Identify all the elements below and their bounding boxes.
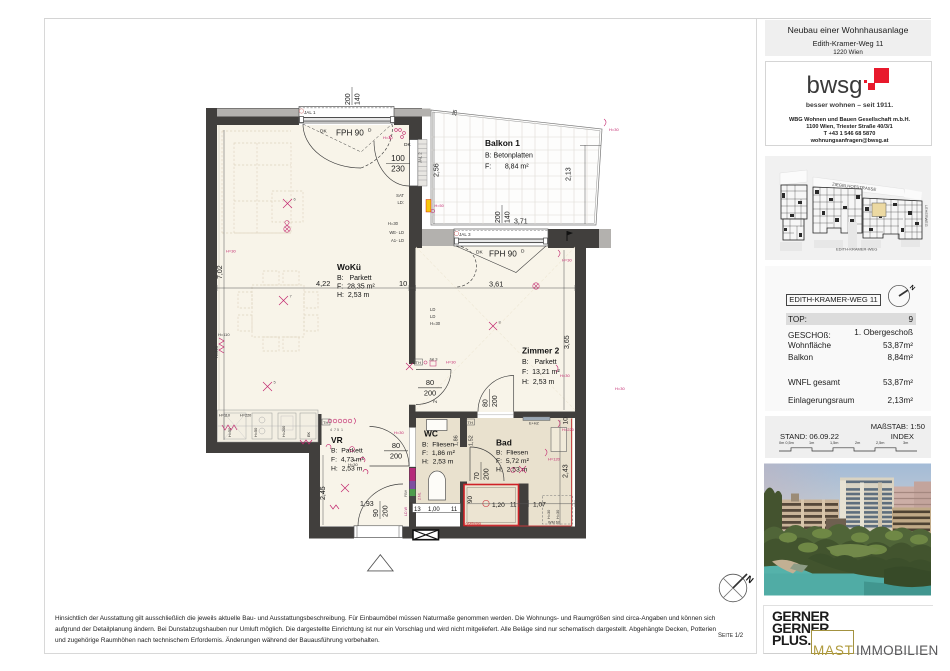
svg-text:200: 200: [383, 505, 390, 517]
svg-text:Zimmer 2: Zimmer 2: [522, 346, 560, 356]
svg-text:F: 13,21 m²: F: 13,21 m²: [522, 369, 560, 376]
svg-text:WM 60: WM 60: [548, 521, 560, 525]
svg-text:13: 13: [414, 507, 421, 513]
svg-text:DK: DK: [404, 142, 411, 148]
svg-text:0m 0,5m: 0m 0,5m: [779, 441, 794, 445]
svg-text:SAT: SAT: [396, 193, 404, 198]
svg-text:LD:: LD:: [397, 200, 404, 205]
svg-text:2,5m: 2,5m: [876, 441, 884, 445]
svg-text:FBH: FBH: [404, 489, 408, 497]
svg-text:200: 200: [492, 395, 499, 407]
svg-text:230: 230: [391, 165, 405, 174]
svg-text:H=30: H=30: [562, 258, 572, 263]
svg-text:80: 80: [426, 378, 434, 387]
svg-text:10: 10: [399, 279, 407, 288]
svg-text:10: 10: [563, 417, 570, 425]
svg-text:H=30: H=30: [226, 249, 236, 254]
svg-text:H=220: H=220: [214, 345, 219, 358]
svg-text:1m: 1m: [809, 441, 814, 445]
svg-text:LD: LD: [430, 307, 435, 312]
svg-text:H=30: H=30: [388, 221, 399, 226]
svg-text:DK: DK: [476, 250, 483, 256]
svg-text:H=30: H=30: [556, 510, 560, 519]
svg-text:DK: DK: [320, 129, 327, 135]
svg-text:1,86: 1,86: [454, 435, 460, 446]
svg-text:B: Parkett: B: Parkett: [331, 448, 363, 455]
svg-text:2,13: 2,13: [566, 167, 573, 181]
svg-text:H=220: H=220: [562, 427, 575, 432]
svg-text:JAL 1: JAL 1: [304, 110, 316, 115]
svg-text:H=50: H=50: [254, 428, 258, 437]
svg-text:25: 25: [452, 109, 459, 116]
svg-text:H=30: H=30: [560, 373, 570, 378]
svg-text:200: 200: [495, 211, 502, 223]
svg-text:140: 140: [505, 211, 512, 223]
svg-text:H: 2,53 m: H: 2,53 m: [422, 459, 454, 466]
svg-text:H: 2,53 m: H: 2,53 m: [331, 466, 363, 473]
svg-text:H=110: H=110: [219, 414, 230, 418]
svg-text:80: 80: [483, 399, 490, 407]
svg-text:H=30: H=30: [446, 360, 456, 365]
svg-text:11: 11: [451, 507, 458, 513]
svg-text:D: D: [368, 128, 372, 134]
svg-text:80: 80: [392, 441, 400, 450]
svg-text:70: 70: [474, 472, 481, 480]
svg-text:3m: 3m: [903, 441, 908, 445]
svg-text:LD: LD: [430, 314, 435, 319]
svg-text:200: 200: [424, 389, 436, 398]
svg-text:200: 200: [484, 468, 491, 480]
svg-text:↩: ↩: [353, 458, 358, 464]
svg-text:H=30: H=30: [547, 510, 551, 519]
svg-text:H=30: H=30: [383, 135, 393, 140]
svg-text:H=110: H=110: [218, 332, 230, 337]
svg-text:H=30: H=30: [609, 127, 619, 132]
svg-text:H=30: H=30: [430, 321, 441, 326]
svg-text:EDITH-KRAMER-WEG: EDITH-KRAMER-WEG: [836, 247, 877, 252]
svg-text:H=200: H=200: [282, 426, 286, 437]
svg-text:TH: TH: [468, 420, 473, 425]
svg-text:F: 28,35 m²: F: 28,35 m²: [337, 284, 375, 291]
svg-text:D: D: [521, 249, 525, 255]
svg-text:3,61: 3,61: [489, 280, 503, 289]
svg-text:JAL 3: JAL 3: [459, 232, 471, 237]
svg-text:JAL 2: JAL 2: [418, 152, 423, 163]
svg-text:1,93: 1,93: [360, 501, 374, 508]
svg-text:-Vollbelag: -Vollbelag: [465, 522, 481, 526]
svg-text:B: Parkett: B: Parkett: [337, 275, 372, 282]
svg-text:200: 200: [345, 93, 352, 105]
svg-text:1,00: 1,00: [428, 507, 440, 513]
svg-text:1,07: 1,07: [533, 502, 546, 509]
svg-text:Balkon 1: Balkon 1: [485, 138, 520, 148]
svg-text:H=220: H=220: [240, 414, 251, 418]
svg-text:2,56: 2,56: [434, 163, 441, 177]
svg-text:Bad: Bad: [496, 438, 512, 448]
svg-text:3,65: 3,65: [564, 335, 571, 349]
svg-text:LEHERWEG: LEHERWEG: [924, 205, 928, 227]
svg-text:H: 2,53 m: H: 2,53 m: [337, 292, 369, 299]
svg-text:F: 8,84 m²: F: 8,84 m²: [485, 164, 529, 171]
svg-text:E+HZ: E+HZ: [529, 422, 539, 426]
svg-text:N: N: [908, 284, 916, 293]
svg-text:140: 140: [355, 93, 362, 105]
svg-text:F: 1,86 m²: F: 1,86 m²: [422, 450, 456, 457]
svg-text:4,22: 4,22: [316, 279, 330, 288]
svg-text:H=30: H=30: [394, 430, 404, 435]
svg-text:1,20: 1,20: [492, 502, 505, 509]
svg-text:LD.W: LD.W: [404, 506, 408, 516]
svg-text:WoKü: WoKü: [337, 262, 361, 272]
svg-text:FPH 90: FPH 90: [489, 250, 517, 259]
svg-text:4 7 5 1: 4 7 5 1: [330, 428, 343, 432]
svg-text:FPH 90: FPH 90: [336, 129, 364, 138]
svg-text:WC: WC: [424, 429, 438, 439]
svg-text:A1- LD: A1- LD: [391, 238, 404, 243]
svg-text:11: 11: [510, 502, 517, 509]
svg-text:EK: EK: [307, 431, 311, 437]
svg-text:2m: 2m: [855, 441, 860, 445]
svg-text:WE- LD: WE- LD: [389, 230, 404, 235]
svg-text:1,52: 1,52: [469, 435, 475, 446]
svg-text:2: 2: [433, 400, 439, 403]
svg-text:7,02: 7,02: [217, 265, 224, 279]
svg-text:B: Fliesen: B: Fliesen: [496, 450, 528, 457]
svg-text:H: 2,53 m: H: 2,53 m: [522, 379, 554, 386]
svg-text:1,5m: 1,5m: [830, 441, 838, 445]
svg-text:VR: VR: [331, 435, 343, 445]
svg-text:200: 200: [390, 452, 402, 461]
svg-text:100: 100: [391, 154, 405, 163]
svg-text:F: 5,72 m²: F: 5,72 m²: [496, 458, 530, 465]
svg-text:2,45: 2,45: [320, 486, 327, 500]
svg-text:90: 90: [467, 496, 474, 503]
svg-text:3,71: 3,71: [514, 219, 528, 226]
svg-text:TH: TH: [323, 420, 328, 425]
svg-text:B: Fliesen: B: Fliesen: [422, 442, 454, 449]
svg-text:B: Parkett: B: Parkett: [522, 359, 557, 366]
svg-text:H=30: H=30: [615, 386, 625, 391]
svg-text:TH: TH: [416, 360, 421, 365]
svg-text:B: Betonplatten: B: Betonplatten: [485, 153, 533, 160]
svg-text:H=50: H=50: [435, 204, 444, 208]
svg-text:90: 90: [373, 509, 380, 517]
svg-text:2.NL: 2.NL: [418, 492, 422, 500]
svg-text:2,43: 2,43: [563, 464, 570, 478]
svg-text:H=120: H=120: [548, 457, 561, 462]
